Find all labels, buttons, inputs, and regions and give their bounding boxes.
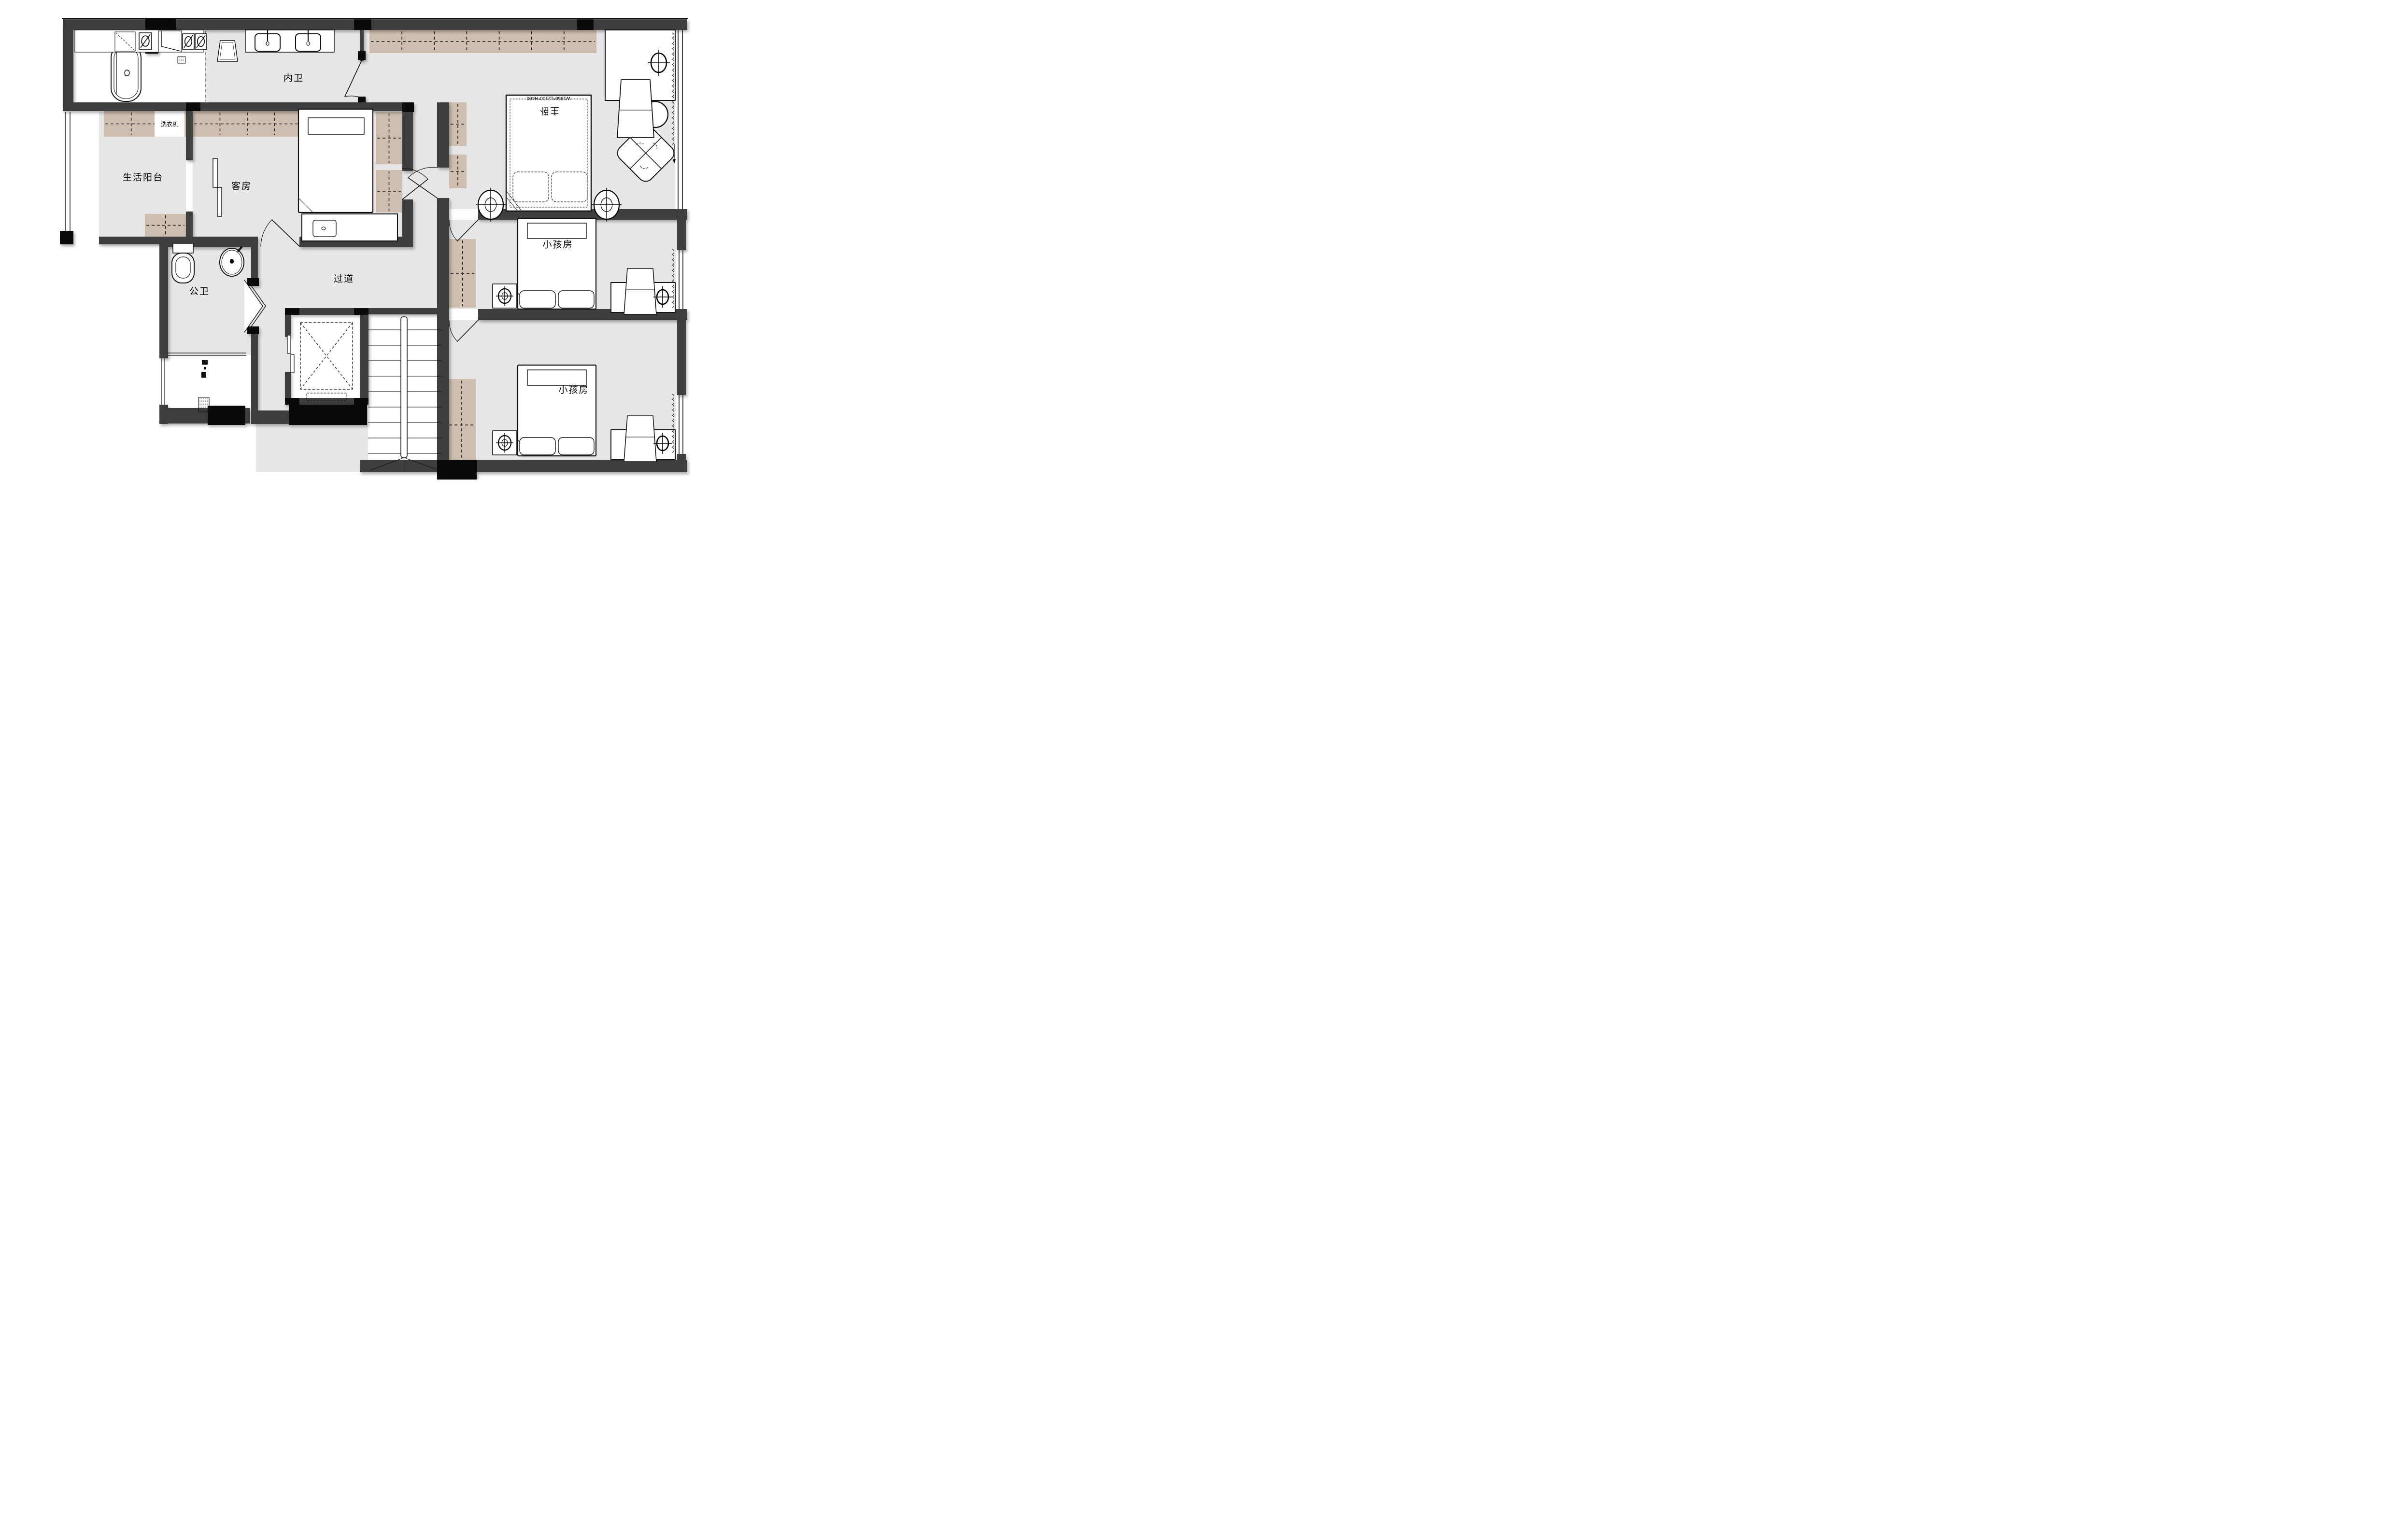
window-strip-kid1: [676, 249, 688, 310]
column-elev-b: [354, 308, 369, 315]
room-label-kid1: 小孩房: [542, 238, 573, 251]
floor-mirror: [217, 41, 238, 61]
slider-balcony-a: [213, 158, 217, 187]
shower-fixture: [204, 367, 206, 369]
column-below-elev: [289, 405, 367, 425]
window-strip-master: [675, 27, 688, 209]
wall-south-mid: [251, 410, 292, 424]
wall-east-b: [677, 309, 686, 395]
chair-master: [617, 80, 654, 138]
column-southwest: [208, 406, 245, 425]
toilet-bowl: [172, 253, 194, 283]
slider-balcony-b: [217, 187, 222, 216]
wall-corridor-west-a: [402, 111, 413, 171]
room-label-washer: 洗衣机: [161, 120, 178, 128]
window-strip-balcony: [63, 111, 73, 238]
wall-elev-left-a: [285, 315, 291, 337]
room-label-guest: 客房: [231, 179, 252, 192]
floor-plan-drawing: [0, 0, 746, 480]
window-strip-shower: [159, 358, 168, 405]
column-south-spine: [437, 460, 477, 480]
column-divider-top: [186, 102, 200, 111]
slider-elevator-b: [291, 354, 294, 373]
wall-stairs-north: [369, 308, 441, 314]
bed-box: [520, 291, 555, 308]
room-label-neiwei: 内卫: [284, 71, 304, 84]
floor-plan: 内卫 洗衣机 生活阳台 客房 过道 公卫 主卧 W1850*L2100*H400…: [0, 0, 746, 480]
basin-dot: [230, 259, 234, 264]
pillow-kid1: [527, 223, 586, 239]
wall-balcony-div-up: [186, 111, 193, 160]
room-label-balcony: 生活阳台: [123, 170, 163, 184]
column-corridor-top: [402, 102, 414, 112]
wall-gongwei-east-a: [251, 247, 258, 280]
wall-master-south-w: [437, 209, 449, 220]
wall-east-c: [677, 454, 686, 472]
wall-spine-a: [437, 102, 449, 168]
column-closet-top: [354, 19, 371, 30]
column-master-top: [577, 19, 594, 30]
room-label-gongwei: 公卫: [189, 284, 210, 297]
room-label-master: 主卧: [539, 105, 559, 118]
column-elev-a: [285, 308, 299, 315]
wall-spine-b: [437, 198, 449, 209]
window-strip-kid2: [676, 394, 688, 455]
bed-box: [558, 438, 594, 455]
room-label-kid2: 小孩房: [558, 383, 589, 396]
wall-stairs-east: [441, 314, 449, 460]
toilet-tank: [173, 243, 193, 253]
column-bath-top-a: [145, 18, 176, 30]
pillow-guest: [308, 118, 364, 134]
room-label-hallway: 过道: [334, 272, 354, 285]
wall-gongwei-west-a: [159, 247, 168, 358]
shower-fixture: [202, 360, 208, 365]
bed-dimension-label: W1850*L2100*H400: [526, 96, 570, 101]
column-elev-c: [285, 398, 299, 405]
wall-balcony-div-low: [186, 212, 193, 237]
wall-corridor-west-b: [402, 199, 413, 237]
chair-kid2: [624, 416, 656, 462]
wall-elev-right: [360, 315, 369, 398]
column-balcony-sw: [60, 231, 73, 244]
wall-left-top: [63, 19, 73, 103]
slider-elevator-a: [287, 335, 291, 353]
chair-kid1: [624, 268, 656, 314]
wall-gongwei-east-b: [251, 333, 258, 411]
bed-box: [558, 291, 594, 308]
wall-spine-kid1: [437, 220, 449, 309]
bed-box: [520, 438, 555, 455]
column-elev-d: [354, 398, 369, 405]
jamb-bathdoor-a: [358, 51, 366, 60]
shower-fixture: [201, 372, 206, 378]
wall-east-a: [677, 220, 686, 250]
